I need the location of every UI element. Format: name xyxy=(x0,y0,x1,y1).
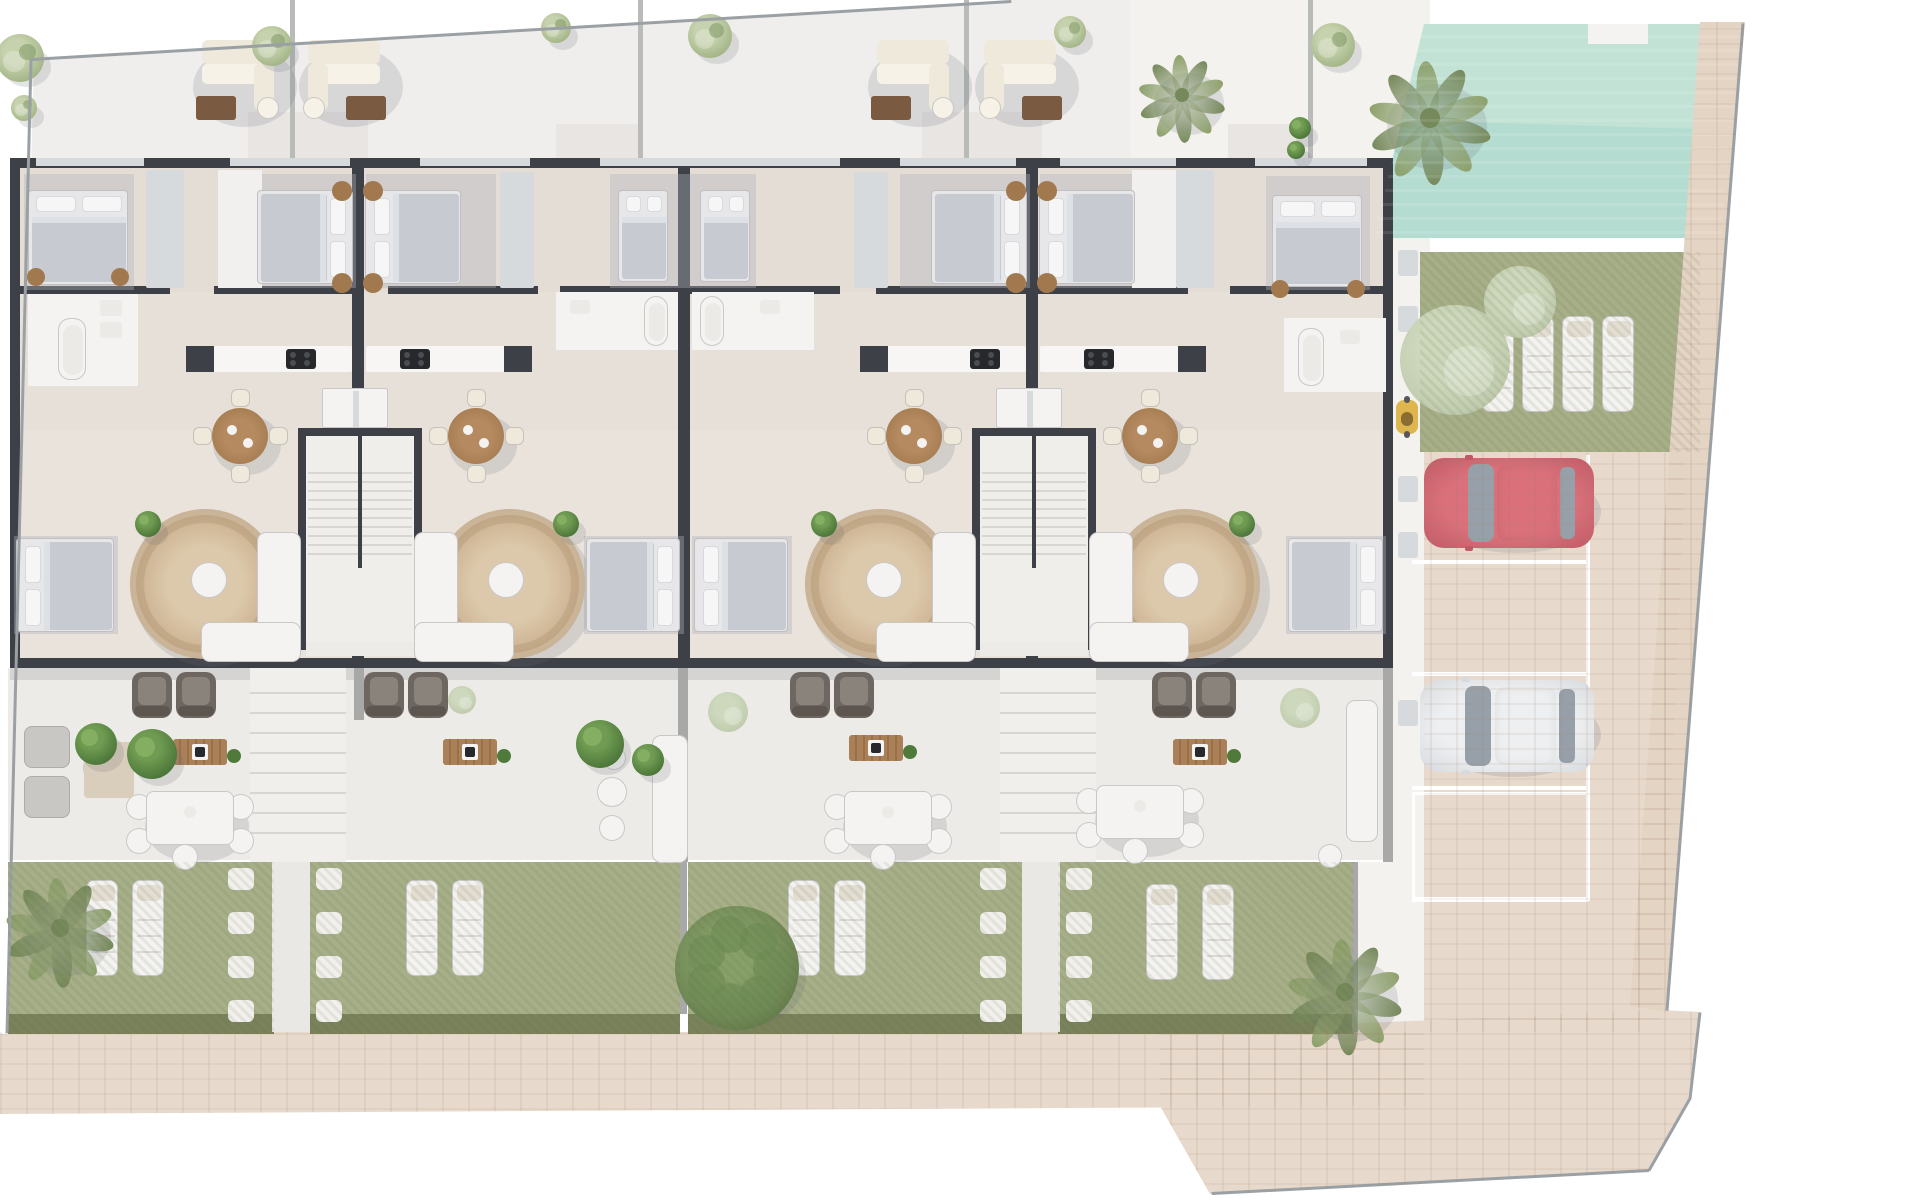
burner xyxy=(418,360,424,366)
kitchen-cabinet xyxy=(504,346,532,372)
step-line xyxy=(1000,692,1096,694)
step-line xyxy=(250,752,346,754)
bathtub xyxy=(644,296,668,346)
rear-window xyxy=(420,158,530,166)
coffee-table xyxy=(866,562,902,598)
pillow xyxy=(657,546,673,583)
bathtub xyxy=(700,296,724,346)
sofa xyxy=(1346,700,1378,842)
duvet-fold xyxy=(647,542,653,630)
outdoor-table xyxy=(1096,785,1184,839)
burner xyxy=(988,360,994,366)
pillow xyxy=(1280,201,1315,217)
dining-chair xyxy=(467,465,486,483)
duvet-fold xyxy=(722,542,728,630)
duvet xyxy=(622,217,666,279)
step-line xyxy=(250,792,346,794)
dining-chair xyxy=(231,465,250,483)
burner xyxy=(290,352,296,358)
step-line xyxy=(250,772,346,774)
entry-hall-floor xyxy=(1132,170,1176,288)
stair-tread xyxy=(1036,535,1086,537)
stair-tread xyxy=(1036,472,1086,474)
grass-texture xyxy=(688,862,1022,1034)
step-line xyxy=(250,712,346,714)
terrace-armchair xyxy=(1196,672,1236,718)
chair-cushion xyxy=(1158,677,1186,705)
duvet-fold xyxy=(994,194,1000,282)
step-line xyxy=(1000,772,1096,774)
dining-chair xyxy=(1141,465,1160,483)
rear-window xyxy=(36,158,144,166)
duvet-fold xyxy=(320,194,326,282)
grill-top xyxy=(195,747,205,757)
burner xyxy=(1102,360,1108,366)
double-bed xyxy=(257,190,353,284)
bush-highlight xyxy=(1290,144,1297,151)
duvet xyxy=(1292,542,1357,630)
bush-foliage xyxy=(135,511,161,537)
dining-table xyxy=(212,408,268,464)
console-plant xyxy=(497,749,511,763)
duvet xyxy=(393,194,459,282)
stair-tread xyxy=(362,508,412,510)
chair-cushion xyxy=(1202,677,1230,705)
grill-icon xyxy=(868,740,884,756)
place-setting xyxy=(243,438,253,448)
chair-back xyxy=(134,706,170,716)
bush-highlight xyxy=(637,749,650,762)
duvet xyxy=(261,194,327,282)
site-plan-rendering xyxy=(0,0,1920,1200)
burner xyxy=(1088,352,1094,358)
nightstand-lamp xyxy=(1006,273,1026,293)
rear-window xyxy=(1060,158,1176,166)
sofa xyxy=(1089,622,1189,662)
rear-window xyxy=(900,158,1016,166)
grass-texture xyxy=(1420,252,1700,452)
nightstand-lamp xyxy=(1347,280,1365,298)
terrace-armchair xyxy=(790,672,830,718)
burner xyxy=(1088,360,1094,366)
entry-hall-floor xyxy=(218,170,262,288)
bush-highlight xyxy=(135,737,155,757)
dining-table xyxy=(448,408,504,464)
stair-tread xyxy=(982,499,1032,501)
duvet-fold xyxy=(1350,542,1356,630)
stair-tread xyxy=(308,544,358,546)
nightstand-lamp xyxy=(332,181,352,201)
stair-tread xyxy=(982,517,1032,519)
dining-chair xyxy=(1179,427,1198,445)
palm-crown xyxy=(1175,88,1189,102)
olive-highlight xyxy=(1296,703,1314,721)
burner xyxy=(304,352,310,358)
patio-sofa-back xyxy=(984,40,1056,64)
stair-tread xyxy=(308,490,358,492)
entry-door xyxy=(996,388,1062,428)
stair-tread xyxy=(362,526,412,528)
duvet-fold xyxy=(622,217,666,223)
terrace-divider-wall xyxy=(354,668,364,720)
stair-tread xyxy=(982,490,1032,492)
stair-tread xyxy=(308,535,358,537)
duvet-fold xyxy=(32,217,126,223)
chair-cushion xyxy=(414,677,442,705)
bush-foliage xyxy=(811,511,837,537)
duvet xyxy=(1067,194,1133,282)
stair-rail xyxy=(358,436,362,568)
double-bed xyxy=(1288,538,1383,632)
dining-chair xyxy=(867,427,886,445)
walkway-mat xyxy=(1398,532,1418,558)
burner xyxy=(418,352,424,358)
patio-sofa-back xyxy=(877,40,949,64)
duvet xyxy=(44,542,112,630)
cooktop xyxy=(286,349,316,369)
grill-icon xyxy=(1192,744,1208,760)
bath-sink xyxy=(570,300,590,314)
pillow xyxy=(1048,241,1064,278)
pillow xyxy=(25,589,41,626)
burner xyxy=(304,360,310,366)
door-frame xyxy=(1027,391,1033,427)
pillow xyxy=(703,589,719,626)
nightstand-lamp xyxy=(27,268,45,286)
bush-foliage xyxy=(553,511,579,537)
wardrobe xyxy=(500,172,534,288)
coffee-table xyxy=(191,562,227,598)
pillow xyxy=(657,589,673,626)
stair-tread xyxy=(982,481,1032,483)
stair-rail xyxy=(1032,436,1036,568)
bath-sink xyxy=(100,300,122,316)
rear-window xyxy=(720,158,840,166)
burner xyxy=(988,352,994,358)
stair-tread xyxy=(1036,544,1086,546)
pillow xyxy=(36,196,76,212)
terrace-armchair xyxy=(834,672,874,718)
stair-tread xyxy=(308,472,358,474)
step-line xyxy=(250,832,346,834)
pillow xyxy=(729,196,744,212)
wardrobe xyxy=(1176,170,1214,288)
step-line xyxy=(1000,752,1096,754)
scooter-seat xyxy=(1401,412,1413,426)
stair-tread xyxy=(308,499,358,501)
walkway-mat xyxy=(1398,700,1418,726)
double-bed xyxy=(16,538,114,632)
stair-tread xyxy=(1036,553,1086,555)
place-setting xyxy=(1153,438,1163,448)
stair-tread xyxy=(308,517,358,519)
stair-tread xyxy=(308,526,358,528)
duvet-fold xyxy=(1276,222,1360,228)
nightstand-lamp xyxy=(1271,280,1289,298)
pillow xyxy=(1321,201,1356,217)
double-bed xyxy=(1272,195,1362,287)
grill-top xyxy=(465,747,475,757)
double-bed xyxy=(700,190,750,282)
dining-chair xyxy=(1141,389,1160,407)
duvet xyxy=(590,542,654,630)
pillow xyxy=(1360,546,1376,583)
pillow xyxy=(703,546,719,583)
walkway-mat xyxy=(1398,476,1418,502)
stair-tread xyxy=(1036,490,1086,492)
grass-texture xyxy=(1058,862,1354,1034)
grill-top xyxy=(1195,747,1205,757)
wardrobe xyxy=(146,170,184,288)
bath-sink xyxy=(760,300,780,314)
grass-texture xyxy=(8,862,274,1034)
chair-back xyxy=(366,706,402,716)
stair-tread xyxy=(362,472,412,474)
pillow xyxy=(647,196,662,212)
outdoor-table xyxy=(844,791,932,845)
stair-tread xyxy=(982,535,1032,537)
place-setting xyxy=(917,438,927,448)
pillow xyxy=(708,196,723,212)
duvet-fold xyxy=(393,194,399,282)
duvet xyxy=(1276,222,1360,284)
bathtub xyxy=(1298,328,1324,386)
stair-tread xyxy=(1036,526,1086,528)
cooktop xyxy=(970,349,1000,369)
terrace-armchair xyxy=(1152,672,1192,718)
burner xyxy=(404,352,410,358)
scooter-wheel xyxy=(1404,396,1410,403)
bbq-console xyxy=(1173,739,1227,765)
scooter-wheel xyxy=(1404,431,1410,438)
rear-window xyxy=(230,158,350,166)
table-decor xyxy=(882,806,894,818)
stair-tread xyxy=(982,472,1032,474)
grill-icon xyxy=(192,744,208,760)
stair-tread xyxy=(982,553,1032,555)
stair-tread xyxy=(308,553,358,555)
pillow xyxy=(626,196,641,212)
chair-back xyxy=(836,706,872,716)
nightstand-lamp xyxy=(332,273,352,293)
scooter xyxy=(1396,400,1418,434)
chair-cushion xyxy=(182,677,210,705)
dining-chair xyxy=(231,389,250,407)
stair-tread xyxy=(362,544,412,546)
patio-pouf xyxy=(303,97,325,119)
walkway-mat xyxy=(1398,250,1418,276)
nightstand-lamp xyxy=(363,273,383,293)
tree-texture xyxy=(1069,22,1080,33)
double-bed xyxy=(618,190,668,282)
patio-coffee-table xyxy=(871,96,911,120)
bush-foliage xyxy=(576,720,624,768)
bush-foliage xyxy=(1287,141,1305,159)
console-plant xyxy=(1227,749,1241,763)
stairwell-opening xyxy=(980,642,1088,656)
chair-cushion xyxy=(138,677,166,705)
duvet xyxy=(722,542,786,630)
double-bed xyxy=(1039,190,1135,284)
grill-top xyxy=(871,743,881,753)
bush-foliage xyxy=(1229,511,1255,537)
grass-texture xyxy=(310,862,680,1034)
sofa xyxy=(201,622,301,662)
burner xyxy=(974,360,980,366)
console-plant xyxy=(903,745,917,759)
stairwell-opening xyxy=(306,642,414,656)
double-bed xyxy=(365,190,461,284)
stair-tread xyxy=(362,553,412,555)
duvet-fold xyxy=(1067,194,1073,282)
terrace-divider-wall xyxy=(1383,668,1393,862)
nightstand-lamp xyxy=(111,268,129,286)
bath-sink xyxy=(100,322,122,338)
nightstand-lamp xyxy=(1037,181,1057,201)
olive-highlight xyxy=(459,697,472,710)
chair-back xyxy=(178,706,214,716)
dining-chair xyxy=(467,389,486,407)
step-line xyxy=(250,732,346,734)
outdoor-pouf xyxy=(597,777,627,807)
stair-tread xyxy=(982,526,1032,528)
door-frame xyxy=(353,391,359,427)
stair-tread xyxy=(308,508,358,510)
pillow xyxy=(1004,198,1020,235)
stair-tread xyxy=(982,508,1032,510)
patio-pouf xyxy=(932,97,954,119)
nightstand-lamp xyxy=(1006,181,1026,201)
dining-chair xyxy=(1103,427,1122,445)
step-line xyxy=(250,812,346,814)
sofa xyxy=(414,622,514,662)
tub-basin xyxy=(649,303,665,341)
kitchen-cabinet xyxy=(1178,346,1206,372)
dining-chair xyxy=(905,465,924,483)
kitchen-cabinet xyxy=(186,346,214,372)
wardrobe xyxy=(854,172,888,288)
nightstand-lamp xyxy=(363,181,383,201)
terrace-armchair xyxy=(176,672,216,718)
garden-path xyxy=(1022,862,1060,1032)
chair-back xyxy=(1154,706,1190,716)
terrace-steps xyxy=(250,668,346,862)
table-decor xyxy=(184,806,196,818)
console-plant xyxy=(227,749,241,763)
step-line xyxy=(250,692,346,694)
duvet xyxy=(704,217,748,279)
chair-back xyxy=(1198,706,1234,716)
coffee-table xyxy=(1163,562,1199,598)
stair-tread xyxy=(982,544,1032,546)
pillow xyxy=(330,198,346,235)
place-setting xyxy=(901,425,911,435)
place-setting xyxy=(227,425,237,435)
outdoor-pouf xyxy=(599,815,625,841)
table-decor xyxy=(1134,800,1146,812)
stair-tread xyxy=(362,490,412,492)
kitchen-cabinet xyxy=(860,346,888,372)
duvet-fold xyxy=(44,542,50,630)
tub-basin xyxy=(1303,335,1321,381)
outdoor-table xyxy=(146,791,234,845)
patio-coffee-table xyxy=(196,96,236,120)
duvet xyxy=(935,194,1001,282)
stair-tread xyxy=(362,535,412,537)
chair-cushion xyxy=(796,677,824,705)
step-line xyxy=(1000,732,1096,734)
stair-tread xyxy=(362,517,412,519)
dining-chair xyxy=(905,389,924,407)
pillow xyxy=(1360,589,1376,626)
sofa xyxy=(876,622,976,662)
dining-chair xyxy=(193,427,212,445)
bush-foliage xyxy=(75,723,117,765)
place-setting xyxy=(463,425,473,435)
duvet-fold xyxy=(704,217,748,223)
stair-tread xyxy=(1036,508,1086,510)
place-setting xyxy=(1137,425,1147,435)
coffee-table xyxy=(488,562,524,598)
dining-table xyxy=(1122,408,1178,464)
patio-pouf xyxy=(979,97,1001,119)
dining-chair xyxy=(269,427,288,445)
cooktop xyxy=(400,349,430,369)
chair-cushion xyxy=(370,677,398,705)
tub-basin xyxy=(63,325,83,375)
bbq-console xyxy=(443,739,497,765)
terrace-armchair xyxy=(408,672,448,718)
dining-chair xyxy=(943,427,962,445)
dining-chair xyxy=(429,427,448,445)
step-line xyxy=(1000,712,1096,714)
stair-tread xyxy=(362,481,412,483)
chair-back xyxy=(792,706,828,716)
stair-tread xyxy=(1036,499,1086,501)
bath-sink xyxy=(1340,330,1360,344)
place-setting xyxy=(479,438,489,448)
pillow xyxy=(82,196,122,212)
stair-tread xyxy=(1036,481,1086,483)
bbq-console xyxy=(849,735,903,761)
patio-coffee-table xyxy=(346,96,386,120)
stair-tread xyxy=(362,499,412,501)
burner xyxy=(974,352,980,358)
rear-window xyxy=(600,158,720,166)
patio-pouf xyxy=(257,97,279,119)
nightstand-lamp xyxy=(1037,273,1057,293)
chair-cushion xyxy=(840,677,868,705)
grill-icon xyxy=(462,744,478,760)
pillow xyxy=(374,198,390,235)
double-bed xyxy=(931,190,1027,284)
cooktop xyxy=(1084,349,1114,369)
garden-path xyxy=(272,862,310,1032)
stair-tread xyxy=(1036,517,1086,519)
terrace-armchair xyxy=(364,672,404,718)
bathtub xyxy=(58,318,86,380)
olive-highlight xyxy=(724,707,742,725)
outdoor-chair xyxy=(1122,838,1148,864)
burner xyxy=(290,360,296,366)
lounge-chair-gray xyxy=(24,726,70,768)
double-bed xyxy=(586,538,680,632)
tub-basin xyxy=(705,303,721,341)
patio-coffee-table xyxy=(1022,96,1062,120)
chair-back xyxy=(410,706,446,716)
pillow xyxy=(25,546,41,583)
burner xyxy=(1102,352,1108,358)
